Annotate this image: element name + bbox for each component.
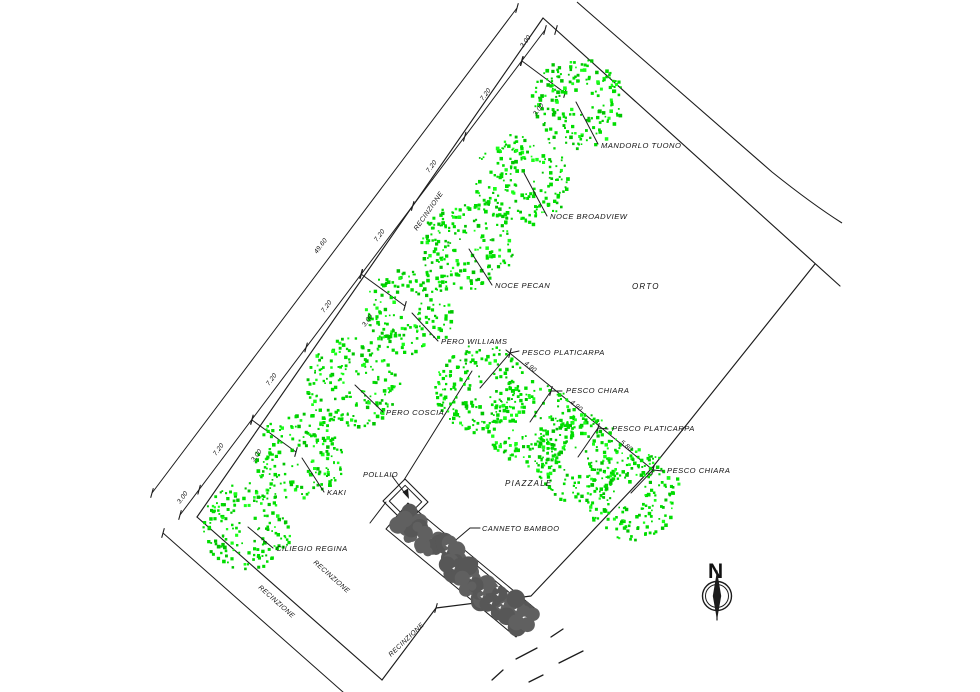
tree-foliage-dot [549, 171, 553, 175]
tree-foliage-dot [608, 440, 611, 443]
tree-foliage-dot [547, 185, 550, 188]
tree-foliage-dot [654, 494, 656, 496]
tree-foliage-dot [498, 249, 501, 252]
tree-foliage-dot [345, 364, 348, 367]
tree-foliage-dot [308, 492, 310, 494]
tree-foliage-dot [442, 389, 444, 391]
tree-foliage-dot [272, 453, 274, 455]
tree-foliage-dot [450, 328, 452, 330]
tree-foliage-dot [554, 448, 557, 451]
tree-foliage-dot [394, 296, 396, 298]
tree-foliage-dot [562, 112, 565, 115]
tree-foliage-dot [481, 412, 485, 416]
tree-foliage-dot [318, 428, 320, 430]
tree-label: NOCE BROADVIEW [550, 212, 628, 221]
tree-foliage-dot [221, 503, 224, 506]
tree-foliage-dot [498, 255, 501, 258]
tree-foliage-dot [547, 108, 550, 111]
tree-foliage-dot [603, 79, 606, 82]
tree-foliage-dot [507, 144, 511, 148]
tree-foliage-dot [543, 72, 545, 74]
tree-foliage-dot [509, 420, 512, 423]
tree-foliage-dot [643, 522, 645, 524]
tree-foliage-dot [503, 442, 505, 444]
tree-foliage-dot [213, 517, 216, 520]
canneto-bamboo-label: CANNETO BAMBOO [482, 524, 560, 533]
tree-foliage-dot [449, 374, 452, 377]
tree-foliage-dot [542, 172, 544, 174]
tree-foliage-dot [575, 487, 577, 489]
tree-foliage-dot [546, 458, 549, 461]
tree-foliage-dot [268, 503, 271, 506]
tree-foliage-dot [607, 467, 609, 469]
tree-foliage-dot [574, 88, 578, 92]
tree-foliage-dot [571, 125, 574, 128]
tree-foliage-dot [453, 282, 456, 285]
tree-foliage-dot [313, 467, 316, 470]
tree-foliage-dot [326, 450, 329, 453]
tree-foliage-dot [478, 405, 482, 409]
tree-foliage-dot [616, 114, 619, 117]
tree-foliage-dot [385, 283, 387, 285]
tree-foliage-dot [387, 291, 389, 293]
tree-foliage-dot [586, 79, 588, 81]
tree-foliage-dot [593, 439, 596, 442]
tree-foliage-dot [440, 275, 444, 279]
tree-foliage-dot [540, 189, 543, 192]
tree-foliage-dot [347, 412, 349, 414]
tree-foliage-dot [638, 514, 641, 517]
tree-foliage-dot [560, 171, 562, 173]
tree-foliage-dot [525, 398, 528, 401]
tree-foliage-dot [313, 382, 316, 385]
tree-foliage-dot [326, 453, 329, 456]
tree-foliage-dot [555, 100, 558, 103]
tree-foliage-dot [528, 221, 531, 224]
tree-foliage-dot [610, 484, 612, 486]
tree-foliage-dot [417, 293, 420, 296]
tree-foliage-dot [270, 482, 273, 485]
tree-foliage-dot [452, 222, 455, 225]
tree-foliage-dot [650, 515, 653, 518]
tree-foliage-dot [578, 475, 582, 479]
tree-foliage-dot [342, 373, 344, 375]
tree-foliage-dot [541, 211, 543, 213]
tree-foliage-dot [307, 378, 310, 381]
tree-foliage-dot [570, 416, 573, 419]
tree-foliage-dot [615, 80, 617, 82]
tree-label: NOCE PECAN [495, 281, 550, 290]
dimension-label: 3.00 [361, 313, 375, 328]
tree-foliage-dot [535, 434, 537, 436]
tree-foliage-dot [403, 351, 406, 354]
tree-foliage-dot [620, 521, 623, 524]
tree-foliage-dot [558, 461, 560, 463]
tree-foliage-dot [391, 403, 394, 406]
tree-foliage-dot [280, 483, 282, 485]
tree-foliage-dot [466, 407, 469, 410]
fence-label: RECINZIONE [257, 584, 296, 620]
tree-foliage-dot [537, 464, 539, 466]
tree-foliage-dot [563, 483, 566, 486]
tree-foliage-dot [508, 387, 512, 391]
tree-foliage-dot [505, 376, 507, 378]
tree-foliage-dot [283, 482, 285, 484]
tree-foliage-dot [542, 445, 546, 449]
tree-foliage-dot [664, 484, 667, 487]
tree-foliage-dot [393, 314, 395, 316]
tree-foliage-dot [607, 512, 610, 515]
tree-foliage-dot [596, 472, 599, 475]
tree-foliage-dot [411, 353, 413, 355]
tree-foliage-dot [491, 250, 494, 253]
tree-foliage-dot [504, 450, 507, 453]
tree-foliage-dot [593, 418, 596, 421]
tree-foliage-dot [569, 136, 573, 140]
tree-foliage-dot [370, 396, 372, 398]
tree-foliage-dot [505, 189, 507, 191]
tree-foliage-dot [440, 266, 443, 269]
tree-foliage-dot [559, 451, 563, 455]
tree-foliage-dot [495, 405, 498, 408]
tree-foliage-dot [553, 111, 556, 114]
tree-foliage-dot [231, 485, 233, 487]
tree-foliage-dot [612, 470, 614, 472]
tree-foliage-dot [478, 204, 481, 207]
tree-foliage-dot [506, 233, 508, 235]
bamboo-mass [480, 596, 496, 612]
tree-foliage-dot [465, 232, 467, 234]
tree-foliage-dot [577, 74, 580, 77]
tree-foliage-dot [563, 86, 567, 90]
tree-foliage-dot [488, 186, 491, 189]
tree-foliage-dot [564, 91, 568, 95]
tree-foliage-dot [510, 173, 512, 175]
tree-foliage-dot [552, 429, 556, 433]
tree-foliage-dot [570, 69, 573, 72]
tree-foliage-dot [380, 301, 382, 303]
tree-foliage-dot [546, 78, 548, 80]
tree-foliage-dot [539, 427, 543, 431]
tree-foliage-dot [609, 109, 613, 113]
tree-foliage-dot [279, 425, 281, 427]
tree-foliage-dot [444, 396, 448, 400]
tree-foliage-dot [326, 436, 330, 440]
tree-foliage-dot [558, 393, 562, 397]
tree-foliage-dot [428, 318, 430, 320]
tree-foliage-dot [481, 427, 484, 430]
tree-foliage-dot [274, 473, 278, 477]
tree-foliage-dot [414, 324, 417, 327]
tree-foliage-dot [438, 281, 441, 284]
tree-foliage-dot [483, 421, 486, 424]
tree-foliage-dot [557, 109, 559, 111]
tree-foliage-dot [509, 134, 511, 136]
tree-foliage-dot [566, 130, 569, 133]
tree-foliage-dot [311, 393, 313, 395]
tree-foliage-dot [425, 316, 428, 319]
tree-foliage-dot [399, 383, 401, 385]
tree-foliage-dot [339, 468, 342, 471]
tree-foliage-dot [672, 486, 675, 489]
tree-foliage-dot [501, 215, 504, 218]
tree-foliage-dot [563, 124, 566, 127]
tree-foliage-dot [565, 186, 567, 188]
tree-foliage-dot [616, 452, 618, 454]
tree-foliage-dot [388, 387, 391, 390]
tree-foliage-dot [580, 432, 584, 436]
tree-foliage-dot [348, 349, 351, 352]
tree-foliage-dot [267, 528, 270, 531]
tree-foliage-dot [554, 454, 557, 457]
tree-foliage-dot [505, 144, 507, 146]
tree-foliage-dot [381, 337, 383, 339]
tree-foliage-dot [517, 210, 519, 212]
tree-foliage-dot [364, 399, 366, 401]
tree-foliage-dot [571, 82, 574, 85]
tree-foliage-dot [509, 444, 512, 447]
tree-foliage-dot [378, 324, 380, 326]
tree-foliage-dot [307, 470, 310, 473]
tree-foliage-dot [653, 533, 655, 535]
tree-foliage-dot [253, 540, 256, 543]
tree-foliage-dot [583, 432, 586, 435]
tree-foliage-dot [209, 522, 211, 524]
dim-tick [464, 132, 466, 141]
tree-foliage-dot [338, 366, 340, 368]
tree-foliage-dot [586, 475, 589, 478]
tree-foliage-dot [452, 267, 454, 269]
tree-foliage-dot [613, 122, 617, 126]
tree-foliage-dot [333, 416, 335, 418]
tree-foliage-dot [450, 273, 453, 276]
tree-foliage-dot [607, 447, 609, 449]
tree-foliage-dot [472, 419, 474, 421]
tree-foliage-dot [439, 284, 442, 287]
tree-foliage-dot [456, 413, 460, 417]
tree-foliage-dot [505, 388, 508, 391]
tree-foliage-dot [572, 492, 574, 494]
tree-foliage-dot [555, 165, 557, 167]
tree-foliage-dot [533, 390, 535, 392]
tree-label-leader [510, 351, 519, 353]
tree-foliage-dot [550, 177, 553, 180]
dimension-label: 7.20 [479, 87, 493, 102]
tree-foliage-dot [289, 535, 291, 537]
tree-foliage-dot [450, 310, 454, 314]
tree-foliage-dot [266, 463, 268, 465]
tree-foliage-dot [542, 449, 544, 451]
tree-foliage-dot [458, 366, 460, 368]
tree-foliage-dot [505, 368, 509, 372]
tree-foliage-dot [221, 546, 223, 548]
tree-foliage-dot [601, 420, 603, 422]
tree-foliage-dot [618, 108, 620, 110]
tree-foliage-dot [499, 176, 502, 179]
tree-foliage-dot [455, 410, 458, 413]
tree-foliage-dot [316, 467, 319, 470]
tree-foliage-dot [615, 438, 617, 440]
tree-foliage-dot [583, 421, 586, 424]
tree-foliage-dot [328, 483, 332, 487]
tree-foliage-dot [552, 447, 555, 450]
tree-foliage-dot [364, 358, 367, 361]
tree-foliage-dot [547, 447, 550, 450]
tree-foliage-dot [450, 270, 452, 272]
tree-foliage-dot [300, 419, 303, 422]
tree-foliage-dot [272, 479, 274, 481]
tree-foliage-dot [365, 372, 367, 374]
tree-foliage-dot [258, 527, 260, 529]
tree-foliage-dot [520, 193, 524, 197]
tree-foliage-dot [469, 384, 472, 387]
tree-foliage-dot [448, 359, 451, 362]
tree-foliage-dot [549, 177, 551, 179]
tree-foliage-dot [514, 420, 517, 423]
tree-foliage-dot [649, 532, 652, 535]
tree-foliage-dot [620, 86, 622, 88]
tree-foliage-dot [506, 410, 509, 413]
tree-foliage-dot [515, 414, 518, 417]
tree-foliage-dot [553, 423, 555, 425]
tree-foliage-dot [522, 136, 524, 138]
tree-foliage-dot [379, 311, 382, 314]
tree-foliage-dot [644, 486, 646, 488]
tree-foliage-dot [614, 449, 617, 452]
tree-foliage-dot [494, 199, 497, 202]
tree-foliage-dot [564, 120, 567, 123]
tree-foliage-dot [217, 557, 220, 560]
tree-foliage-dot [392, 329, 395, 332]
tree-foliage-dot [564, 127, 566, 129]
cad-canvas: POLLAIOCANNETO BAMBOOMANDORLO TUONONOCE … [0, 0, 980, 692]
tree-foliage-dot [467, 377, 470, 380]
tree-foliage-dot [491, 403, 494, 406]
tree-foliage-dot [398, 277, 401, 280]
tree-foliage-dot [377, 376, 379, 378]
tree-foliage-dot [623, 507, 625, 509]
tree-foliage-dot [611, 84, 613, 86]
tree-foliage-dot [653, 492, 656, 495]
tree-foliage-dot [394, 285, 397, 288]
tree-foliage-dot [560, 398, 562, 400]
tree-foliage-dot [274, 465, 277, 468]
tree-foliage-dot [589, 475, 591, 477]
tree-foliage-dot [310, 414, 313, 417]
tree-foliage-dot [489, 171, 492, 174]
tree-foliage-dot [584, 413, 586, 415]
tree-foliage-dot [369, 324, 371, 326]
tree-foliage-dot [500, 419, 503, 422]
tree-foliage-dot [378, 279, 380, 281]
tree-foliage-dot [609, 497, 611, 499]
tree-foliage-dot [624, 477, 626, 479]
tree-foliage-dot [364, 425, 367, 428]
tree-foliage-dot [348, 358, 350, 360]
tree-foliage-dot [400, 316, 403, 319]
tree-foliage-dot [493, 373, 495, 375]
tree-foliage-dot [478, 180, 482, 184]
tree-foliage-dot [453, 408, 455, 410]
tree-foliage-dot [569, 65, 572, 68]
tree-foliage-dot [435, 277, 439, 281]
tree-foliage-dot [231, 524, 234, 527]
tree-foliage-dot [545, 197, 548, 200]
tree-foliage-dot [560, 424, 563, 427]
tree-foliage-dot [381, 283, 383, 285]
tree-foliage-dot [315, 472, 317, 474]
tree-foliage-dot [583, 68, 587, 72]
tree-foliage-dot [487, 427, 489, 429]
tree-foliage-dot [333, 447, 336, 450]
tree-foliage-dot [354, 420, 357, 423]
tree-foliage-dot [450, 320, 454, 324]
tree-foliage-dot [319, 369, 322, 372]
tree-foliage-dot [515, 169, 519, 173]
tree-foliage-dot [467, 262, 470, 265]
bamboo-mass [492, 586, 508, 602]
tree-foliage-dot [477, 422, 480, 425]
tree-foliage-dot [437, 403, 441, 407]
tree-foliage-dot [486, 257, 489, 260]
tree-foliage-dot [645, 515, 647, 517]
tree-foliage-dot [273, 485, 275, 487]
tree-foliage-dot [503, 416, 507, 420]
tree-foliage-dot [375, 401, 378, 404]
tree-foliage-dot [326, 378, 328, 380]
tree-foliage-dot [403, 334, 406, 337]
tree-foliage-dot [238, 522, 240, 524]
tree-foliage-dot [329, 374, 332, 377]
tree-foliage-dot [458, 215, 462, 219]
tree-foliage-dot [341, 338, 344, 341]
tree-foliage-dot [523, 197, 526, 200]
tree-foliage-dot [531, 380, 534, 383]
dimension-label: 7.20 [320, 299, 334, 314]
tree-foliage-dot [610, 479, 613, 482]
tree-foliage-dot [520, 218, 522, 220]
tree-foliage-dot [450, 388, 452, 390]
tree-foliage-dot [432, 239, 434, 241]
tree-foliage-dot [386, 323, 389, 326]
tree-foliage-dot [278, 474, 280, 476]
tree-foliage-dot [499, 410, 501, 412]
tree-foliage-dot [609, 86, 612, 89]
tree-foliage-dot [218, 506, 220, 508]
terrain-dash [492, 670, 503, 680]
tree-foliage-dot [511, 398, 513, 400]
dimension-label: 7.20 [212, 442, 226, 457]
tree-foliage-dot [564, 469, 566, 471]
tree-foliage-dot [436, 317, 439, 320]
tree-foliage-dot [472, 424, 474, 426]
tree-foliage-dot [310, 435, 313, 438]
tree-foliage-dot [470, 282, 473, 285]
tree-foliage-dot [270, 423, 272, 425]
tree-canopy [255, 413, 343, 500]
tree-foliage-dot [467, 387, 471, 391]
tree-foliage-dot [595, 420, 598, 423]
tree-foliage-dot [496, 176, 498, 178]
tree-foliage-dot [449, 242, 451, 244]
tree-foliage-dot [248, 504, 251, 507]
fence-label: RECINZIONE [312, 559, 351, 595]
tree-foliage-dot [274, 495, 277, 498]
tree-foliage-dot [291, 480, 294, 483]
tree-foliage-dot [217, 509, 220, 512]
tree-foliage-dot [344, 356, 348, 360]
tree-foliage-dot [580, 114, 582, 116]
